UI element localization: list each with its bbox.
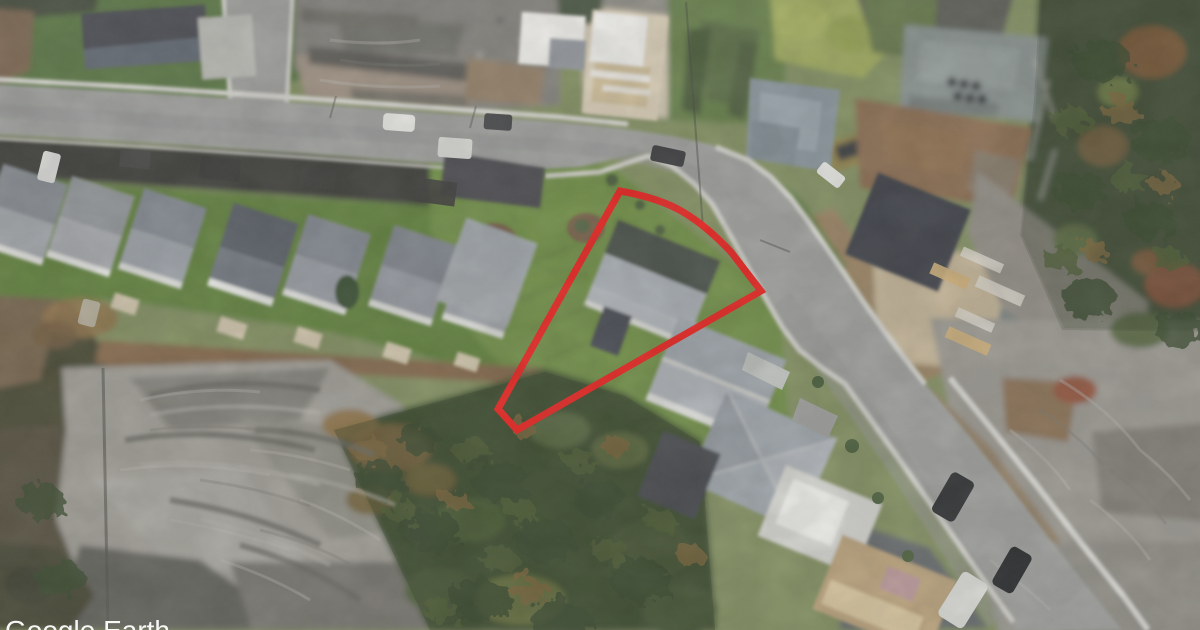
svg-text:Google Earth: Google Earth (5, 615, 170, 630)
